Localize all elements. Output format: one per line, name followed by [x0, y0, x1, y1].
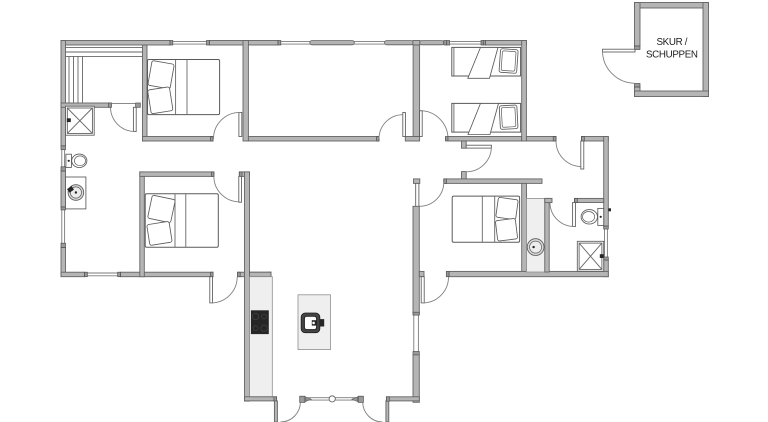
svg-text:SKUR /: SKUR / — [657, 37, 688, 48]
svg-text:SCHUPPEN: SCHUPPEN — [646, 49, 698, 60]
